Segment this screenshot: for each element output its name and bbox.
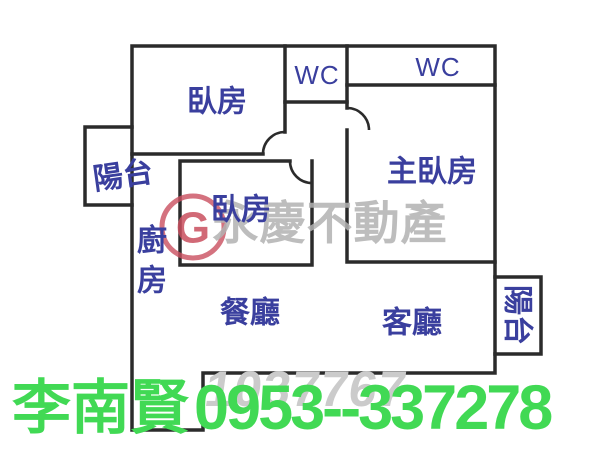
room-label-balcony-right: 陽台 — [501, 285, 535, 345]
room-label-wc-master: WC — [415, 52, 460, 82]
room-label-living: 客廳 — [382, 306, 442, 340]
room-label-master-bedroom: 主臥房 — [387, 156, 477, 189]
room-label-kitchen-char-2: 房 — [137, 265, 167, 298]
bedroom-top-door-arc — [263, 132, 285, 154]
room-label-balcony-left: 陽台 — [91, 154, 155, 196]
brand-logo-g-icon: G — [176, 204, 210, 253]
room-label-wc-small: WC — [294, 60, 339, 90]
room-label-kitchen-char-1: 廚 — [137, 224, 167, 258]
brand-watermark: G 永慶不動產 — [162, 196, 448, 258]
agent-phone-text: 0953--337278 — [194, 373, 552, 443]
agent-name-text: 李南賢 — [12, 375, 190, 441]
room-label-bedroom-top: 臥房 — [187, 86, 247, 119]
floorplan-svg: G 永慶不動產 臥房 WC WC 主臥房 陽台 臥房 廚 房 餐廳 客廳 陽台 … — [0, 0, 600, 450]
room-label-dining: 餐廳 — [220, 296, 280, 330]
floorplan-listing-photo: G 永慶不動產 臥房 WC WC 主臥房 陽台 臥房 廚 房 餐廳 客廳 陽台 … — [0, 0, 600, 450]
master-bedroom-door-arc — [347, 108, 369, 130]
room-label-bedroom-middle: 臥房 — [211, 194, 271, 227]
bedroom-middle-door-arc — [290, 161, 312, 183]
